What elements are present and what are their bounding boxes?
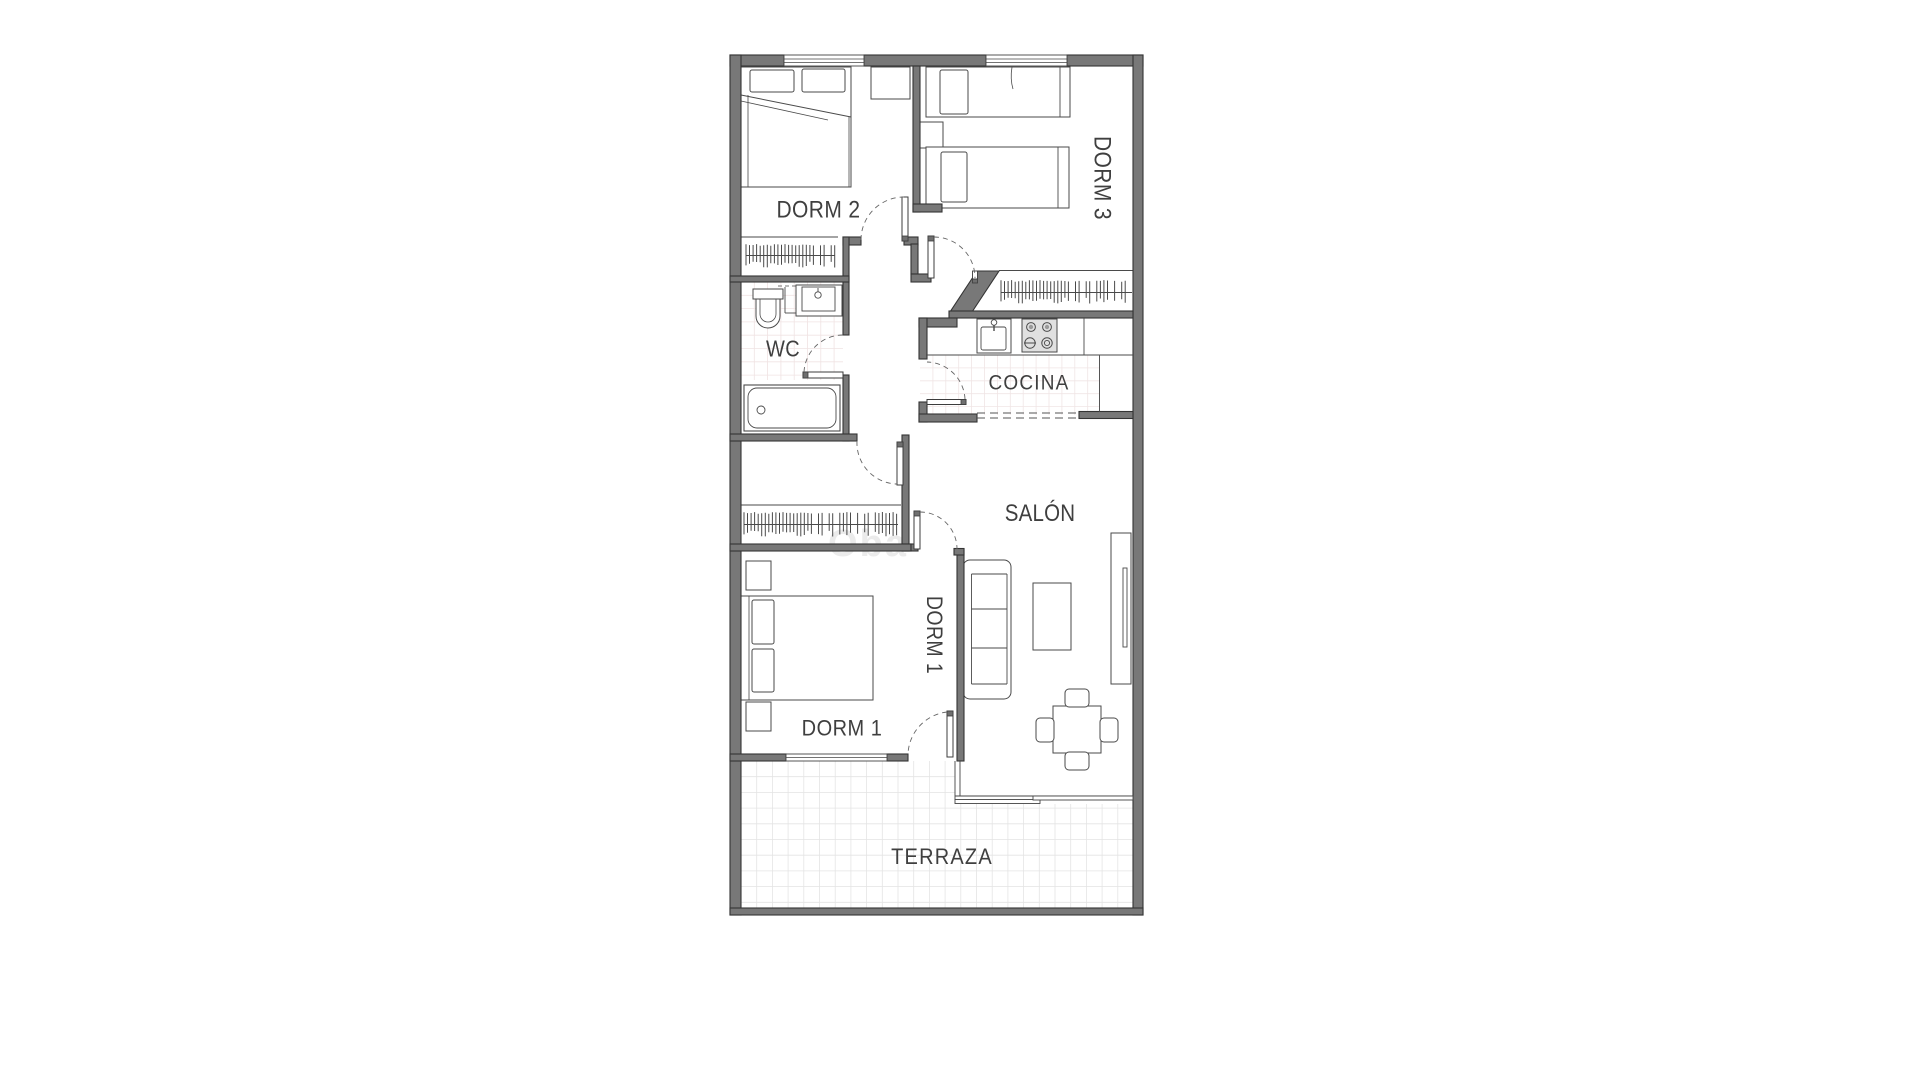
svg-text:DORM 1: DORM 1 <box>802 717 883 741</box>
svg-text:SALÓN: SALÓN <box>1005 500 1075 527</box>
svg-text:DORM 3: DORM 3 <box>1089 136 1116 220</box>
svg-text:DORM 2: DORM 2 <box>776 196 860 223</box>
svg-text:DORM 1: DORM 1 <box>922 596 947 674</box>
svg-text:TERRAZA: TERRAZA <box>891 845 993 869</box>
svg-text:WC: WC <box>766 335 800 362</box>
svg-text:COCINA: COCINA <box>988 372 1069 395</box>
